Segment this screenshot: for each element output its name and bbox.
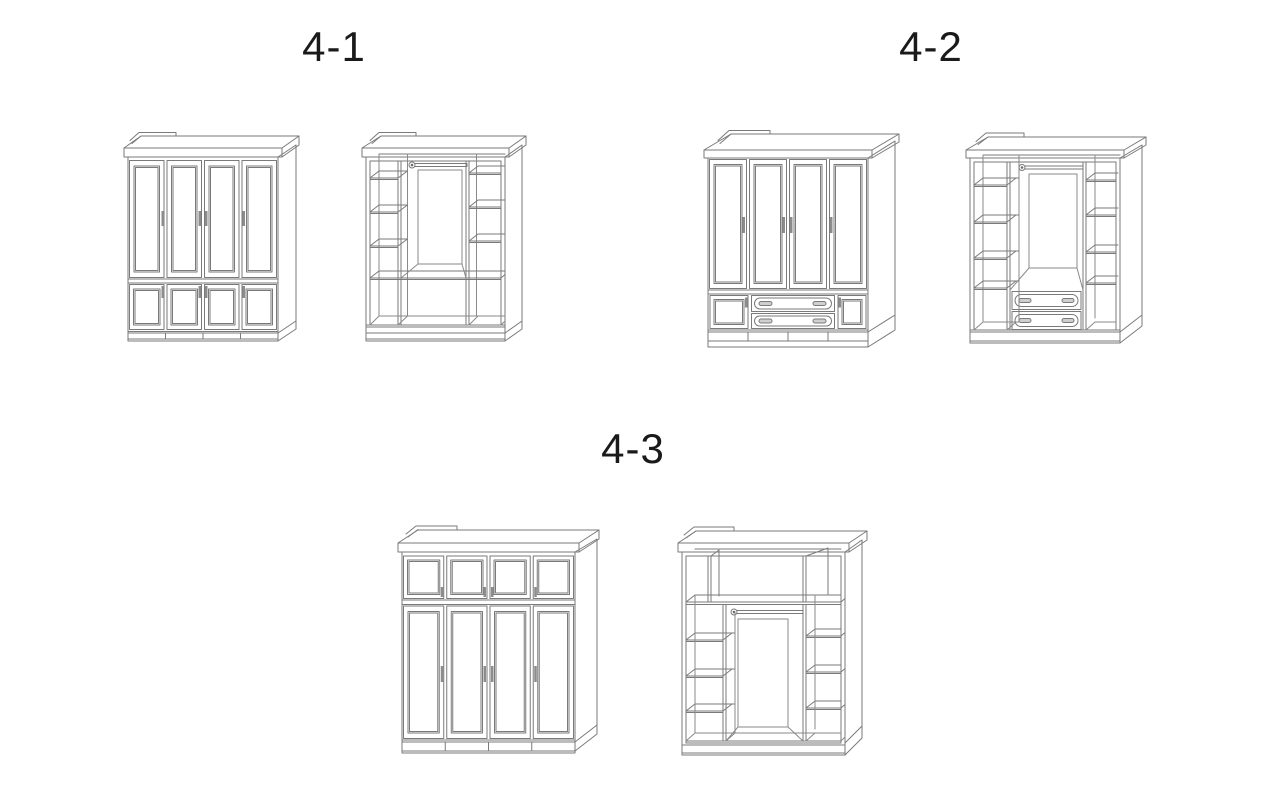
drawer-handle bbox=[759, 319, 772, 323]
drawer-handle bbox=[1062, 319, 1074, 323]
cornice bbox=[362, 133, 526, 158]
tall-doors bbox=[404, 606, 574, 739]
back-wall bbox=[401, 170, 466, 278]
cornice bbox=[678, 527, 867, 552]
back-rail bbox=[406, 526, 457, 537]
side-panel bbox=[1120, 145, 1142, 343]
tall-doors bbox=[130, 161, 277, 278]
side-panel bbox=[868, 141, 895, 347]
drawer-handle bbox=[813, 302, 826, 306]
back-rail bbox=[976, 133, 1024, 145]
floor bbox=[686, 733, 845, 743]
partitions bbox=[398, 161, 469, 325]
section-label-4-3: 4-3 bbox=[568, 428, 698, 470]
back-rail bbox=[130, 133, 176, 144]
wardrobe-4-1-open-drawing bbox=[356, 126, 531, 346]
side-panel bbox=[278, 145, 296, 341]
door-handles bbox=[441, 587, 537, 682]
cornice bbox=[704, 131, 899, 159]
base bbox=[970, 330, 1120, 341]
wardrobe-4-2-closed-drawing bbox=[698, 128, 903, 356]
right-shelf-column bbox=[1086, 173, 1118, 330]
cornice bbox=[124, 133, 299, 158]
back-wall bbox=[1010, 174, 1083, 290]
side-panel bbox=[845, 540, 862, 755]
side-panel bbox=[505, 145, 522, 341]
base bbox=[682, 745, 845, 753]
tall-doors bbox=[710, 160, 867, 289]
wardrobe-4-3-open-drawing bbox=[664, 523, 869, 771]
side-panel bbox=[575, 539, 597, 751]
wardrobe-4-2-open-drawing bbox=[958, 128, 1150, 356]
full-width-shelf bbox=[686, 595, 845, 605]
right-shelf-column bbox=[469, 166, 505, 243]
back-wall bbox=[726, 619, 803, 741]
drawer-handle bbox=[1062, 299, 1074, 303]
wardrobe-4-1-closed-drawing bbox=[118, 126, 313, 346]
hanging-rod bbox=[731, 609, 803, 615]
hanging-rod bbox=[1019, 165, 1083, 171]
carcass bbox=[682, 549, 845, 755]
furniture-diagram-canvas: 4-1 4-2 4-3 bbox=[0, 0, 1280, 800]
left-shelf-column bbox=[686, 595, 735, 733]
left-shelf-column bbox=[370, 171, 408, 248]
section-label-4-2: 4-2 bbox=[866, 26, 996, 68]
hanging-rod bbox=[409, 162, 467, 168]
small-doors bbox=[130, 285, 277, 330]
drawer-handle bbox=[759, 302, 772, 306]
wardrobe-4-3-closed-drawing bbox=[393, 523, 605, 771]
top-small-doors bbox=[404, 556, 574, 599]
drawers bbox=[752, 296, 835, 329]
section-label-4-1: 4-1 bbox=[269, 26, 399, 68]
drawers bbox=[1012, 292, 1081, 330]
right-shelf-column bbox=[806, 595, 845, 729]
carcass-front bbox=[128, 157, 278, 341]
drawer-handle bbox=[1019, 319, 1031, 323]
drawer-handle bbox=[1019, 299, 1031, 303]
cornice bbox=[966, 133, 1146, 158]
base bbox=[366, 325, 505, 339]
full-width-shelf bbox=[370, 271, 505, 280]
drawer-handle bbox=[813, 319, 826, 323]
cornice bbox=[398, 526, 599, 552]
back-rail bbox=[684, 527, 734, 538]
carcass-front bbox=[402, 552, 575, 753]
bottom-compartments bbox=[370, 316, 505, 325]
